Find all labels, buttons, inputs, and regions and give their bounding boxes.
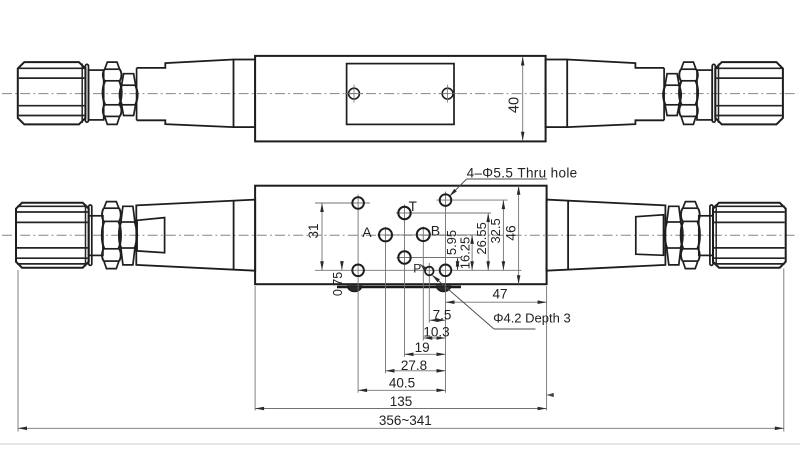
svg-text:40.5: 40.5 — [389, 376, 415, 391]
svg-text:7.5: 7.5 — [433, 307, 452, 322]
svg-text:4–Φ5.5 Thru hole: 4–Φ5.5 Thru hole — [467, 165, 578, 180]
svg-text:B: B — [431, 222, 440, 238]
svg-text:47: 47 — [492, 286, 507, 301]
svg-text:0.75: 0.75 — [331, 272, 345, 296]
svg-text:A: A — [362, 224, 372, 240]
svg-text:135: 135 — [390, 394, 413, 409]
svg-text:356~341: 356~341 — [379, 413, 432, 428]
svg-text:46: 46 — [503, 225, 519, 241]
svg-text:Φ4.2 Depth 3: Φ4.2 Depth 3 — [493, 310, 571, 325]
svg-text:32.5: 32.5 — [488, 218, 503, 243]
svg-text:16.25: 16.25 — [457, 237, 472, 270]
svg-text:10.3: 10.3 — [423, 325, 449, 340]
svg-text:40: 40 — [506, 97, 522, 113]
svg-text:P: P — [413, 262, 421, 276]
svg-text:19: 19 — [415, 340, 430, 355]
svg-text:27.8: 27.8 — [401, 358, 427, 373]
svg-text:31: 31 — [306, 223, 321, 238]
svg-text:T: T — [409, 199, 417, 214]
